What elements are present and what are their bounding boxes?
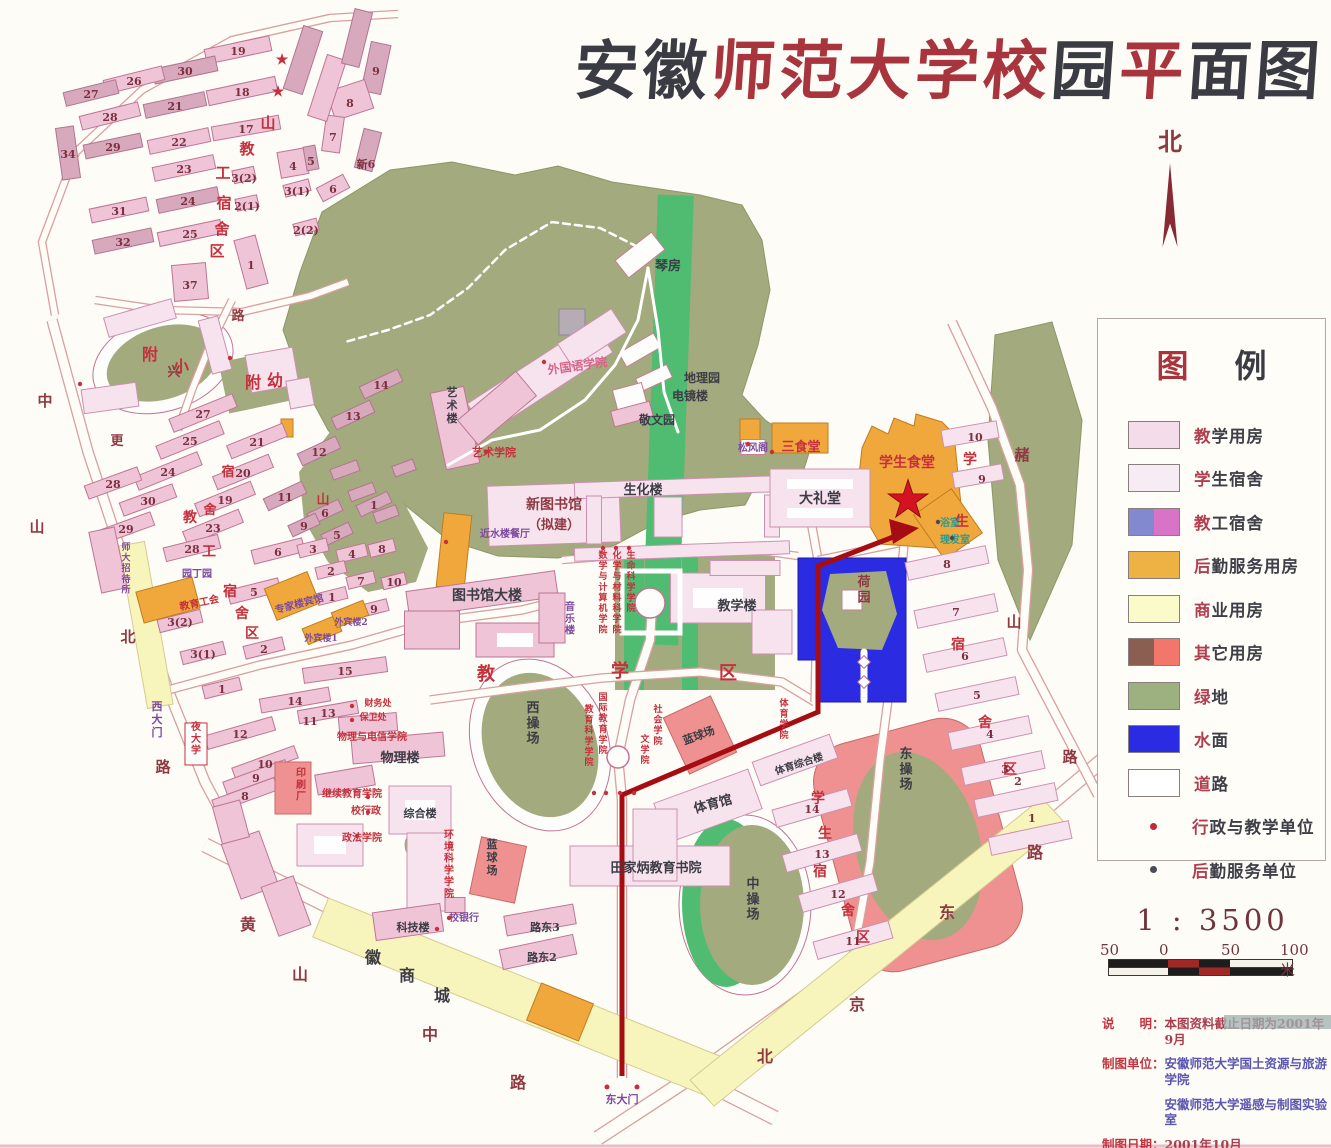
building-number: 新6 xyxy=(357,157,376,171)
admin-unit-dot-icon xyxy=(78,382,82,386)
map-label: 三食堂 xyxy=(781,439,820,455)
map-label: 体育学院 xyxy=(779,697,789,741)
admin-unit-dot-icon xyxy=(746,442,750,446)
building-number: 12 xyxy=(232,728,247,741)
building-number: 3(2) xyxy=(231,172,257,185)
legend: 图例 教学用房学生宿舍教工宿舍后勤服务用房商业用房其它用房绿地水面道路行政与教学… xyxy=(1097,318,1326,861)
map-label: 东操场 xyxy=(899,746,912,793)
legend-item-label: 后勤服务单位 xyxy=(1192,858,1297,882)
building-number: 2 xyxy=(260,643,268,656)
map-label: 松风阁 xyxy=(738,441,768,454)
building-number: 21 xyxy=(167,100,182,113)
admin-unit-dot-icon xyxy=(350,704,354,708)
legend-swatch xyxy=(1128,823,1178,830)
map-label: 路东2 xyxy=(527,950,557,964)
map-label: 蓝球场 xyxy=(487,837,499,877)
map-label: 教 xyxy=(477,663,496,685)
map-label: 路 xyxy=(231,308,245,324)
map-building xyxy=(710,561,780,576)
title-char: 师 xyxy=(708,20,778,112)
map-label: 舍 xyxy=(214,220,230,238)
title-char: 校 xyxy=(980,20,1050,112)
building-number: 13 xyxy=(320,707,335,720)
building-number: 9 xyxy=(978,473,986,486)
admin-unit-dot-icon xyxy=(484,450,488,454)
campus-map-page: ★琴房外国语学院地理园电镜楼敬文园松风阁三食堂学生食堂大礼堂生化楼新图书馆（拟建… xyxy=(0,0,1331,1148)
map-label: 西操场 xyxy=(526,701,539,747)
building-number: 7 xyxy=(952,606,960,619)
building-number: 11 xyxy=(845,935,860,948)
map-decor xyxy=(635,588,665,618)
map-label: 教学楼 xyxy=(716,598,756,614)
map-label: 北 xyxy=(120,628,135,646)
map-label: 新图书馆 xyxy=(526,496,582,513)
admin-unit-dot-icon xyxy=(601,546,605,550)
legend-swatch xyxy=(1128,508,1180,536)
map-label: 保卫处 xyxy=(358,711,387,723)
map-label: 社会学院 xyxy=(652,703,663,747)
legend-item-label: 其它用房 xyxy=(1194,640,1264,664)
map-label: 生化楼 xyxy=(623,482,662,498)
building-number: 7 xyxy=(329,131,337,144)
legend-item: 教学用房 xyxy=(1128,413,1325,457)
building-number: 13 xyxy=(345,410,360,423)
title-char: 徽 xyxy=(640,20,710,112)
legend-item: 道路 xyxy=(1128,761,1325,805)
building-number: 28 xyxy=(105,478,121,491)
map-label: 生 xyxy=(818,825,832,842)
legend-item: 绿地 xyxy=(1128,674,1325,718)
map-label: 图书馆大楼 xyxy=(452,587,522,604)
legend-item-label: 道路 xyxy=(1194,771,1229,795)
scale-ticks: 50050100 米 xyxy=(1100,941,1325,959)
map-label: 数学与计算机学院 xyxy=(598,549,608,635)
admin-unit-dot-icon xyxy=(228,356,232,360)
scale-box: 1 : 3500 50050100 米 xyxy=(1100,903,1325,976)
building-number: 2(1) xyxy=(234,200,260,213)
building-number: 6 xyxy=(321,507,329,520)
building-number: 3(1) xyxy=(190,648,216,661)
building-number: 15 xyxy=(337,665,352,678)
north-label: 北 xyxy=(1146,122,1194,157)
building-number: 1 xyxy=(218,683,226,696)
map-label: 音乐楼 xyxy=(565,600,575,637)
title-char: 平 xyxy=(1117,20,1187,112)
map-label: 夜大学 xyxy=(190,720,202,757)
note-line: 制图日期：2001年10月 xyxy=(1102,1137,1330,1148)
building-number: 21 xyxy=(249,436,264,449)
building-number: 14 xyxy=(287,695,303,708)
map-label: 师大招待所 xyxy=(121,541,130,595)
legend-title: 图例 xyxy=(1098,341,1325,387)
map-label: 东大门 xyxy=(606,1092,639,1106)
building-number: 20 xyxy=(235,467,251,480)
map-decor xyxy=(607,746,629,768)
building-number: 13 xyxy=(814,848,829,861)
map-label: 宿 xyxy=(216,194,231,212)
legend-item: 水面 xyxy=(1128,718,1325,762)
admin-unit-dot-icon xyxy=(604,791,608,795)
legend-dot-icon xyxy=(1150,866,1157,873)
building-number: 4 xyxy=(348,548,356,561)
legend-item-label: 教工宿舍 xyxy=(1194,510,1264,534)
building-number: 9 xyxy=(370,603,378,616)
map-decor xyxy=(605,1085,610,1090)
building-number: 27 xyxy=(83,88,98,101)
scale-bar-bottom xyxy=(1108,968,1293,976)
building-number: 7 xyxy=(357,575,365,588)
admin-unit-dot-icon xyxy=(444,540,448,544)
map-label: 京 xyxy=(849,995,865,1014)
building-number: 28 xyxy=(102,111,118,124)
service-unit-dot-icon xyxy=(950,536,954,540)
map-label: 政法学院 xyxy=(342,831,382,844)
building-number: 26 xyxy=(126,75,142,88)
admin-unit-dot-icon xyxy=(614,546,618,550)
north-indicator: 北 xyxy=(1146,122,1194,247)
building-number: 8 xyxy=(346,97,354,110)
building-number: 1 xyxy=(328,591,336,604)
title-char: 面 xyxy=(1185,20,1255,112)
admin-unit-dot-icon xyxy=(355,834,359,838)
legend-item: 行政与教学单位 xyxy=(1128,805,1325,849)
legend-swatch xyxy=(1128,769,1180,797)
title-char: 图 xyxy=(1253,20,1323,112)
map-label: 化学与材料科学院 xyxy=(611,549,621,635)
building-number: 32 xyxy=(115,236,130,249)
legend-dot-icon xyxy=(1150,823,1157,830)
map-label: 幼 xyxy=(267,371,283,390)
map-label: 路 xyxy=(1027,843,1044,862)
legend-title-char: 例 xyxy=(1235,341,1267,387)
map-label: 财务处 xyxy=(363,697,392,709)
map-label: 商 xyxy=(399,966,415,985)
map-label: 教育科学学院 xyxy=(583,703,594,768)
map-building xyxy=(407,833,449,911)
map-building xyxy=(497,633,533,647)
map-label: 生命科学学院 xyxy=(625,549,636,614)
building-number: 6 xyxy=(274,546,282,559)
map-label: 物理楼 xyxy=(380,750,419,766)
map-label: 区 xyxy=(209,242,224,260)
title-char: 范 xyxy=(776,20,846,112)
map-label: 兴 xyxy=(167,364,180,380)
map-label: 电镜楼 xyxy=(672,388,708,403)
building-number: 3 xyxy=(309,543,317,556)
map-label: 大礼堂 xyxy=(799,490,841,507)
map-label: 科技楼 xyxy=(397,920,430,934)
map-notes: 说 明：本图资料截止日期为2001年9月制图单位：安徽师范大学国土资源与旅游学院… xyxy=(1102,1016,1330,1148)
map-label: 区 xyxy=(245,626,259,642)
building-number: 5 xyxy=(307,155,315,168)
map-label: 中 xyxy=(422,1025,438,1044)
title-char: 安 xyxy=(572,20,642,112)
map-label: 生 xyxy=(955,513,969,530)
legend-item-label: 水面 xyxy=(1194,727,1229,751)
map-label: 园丁园 xyxy=(182,568,212,580)
building-number: 3 xyxy=(1001,763,1009,776)
map-building xyxy=(654,497,682,537)
map-building xyxy=(405,611,460,649)
map-label: 路 xyxy=(155,758,171,776)
legend-item: 教工宿舍 xyxy=(1128,500,1325,544)
legend-items: 教学用房学生宿舍教工宿舍后勤服务用房商业用房其它用房绿地水面道路行政与教学单位后… xyxy=(1128,413,1325,892)
building-number: 25 xyxy=(182,228,197,241)
map-label: 艺术楼 xyxy=(446,385,458,425)
map-label: 继续教育学院 xyxy=(322,787,382,800)
map-label: 学 xyxy=(611,660,629,682)
map-label: 舍 xyxy=(203,502,217,518)
building-number: 19 xyxy=(217,494,232,507)
building-number: 8 xyxy=(241,790,249,803)
map-label: 路 xyxy=(510,1073,527,1092)
map-label: 田家炳教育书院 xyxy=(610,860,701,876)
building-number: 29 xyxy=(118,523,133,536)
map-label: 徽 xyxy=(364,948,382,967)
legend-item: 学生宿舍 xyxy=(1128,457,1325,501)
map-label: 近水楼餐厅 xyxy=(480,527,530,540)
legend-item-label: 绿地 xyxy=(1194,684,1229,708)
map-label: 舍 xyxy=(840,902,856,919)
building-number: 6 xyxy=(961,650,969,663)
building-number: 24 xyxy=(180,195,196,208)
building-number: 10 xyxy=(386,576,402,589)
admin-unit-dot-icon xyxy=(542,360,546,364)
map-building xyxy=(587,496,602,544)
legend-item: 后勤服务单位 xyxy=(1128,848,1325,892)
map-label: 外宾楼2 xyxy=(333,616,367,628)
admin-unit-dot-icon xyxy=(350,718,354,722)
building-number: 23 xyxy=(176,163,191,176)
building-number: 34 xyxy=(60,148,76,161)
building-number: 6 xyxy=(329,183,337,196)
map-label: 敬文园 xyxy=(638,412,675,427)
map-label: 西大门 xyxy=(152,700,163,739)
scale-tick: 50 xyxy=(1221,941,1240,959)
map-label: 物理与电信学院 xyxy=(337,730,407,743)
building-number: 5 xyxy=(250,586,258,599)
legend-item-label: 商业用房 xyxy=(1194,597,1264,621)
map-label: 学 xyxy=(963,451,977,468)
map-label: 山 xyxy=(260,114,275,132)
map-label: 附 xyxy=(245,373,261,392)
map-label: 校银行 xyxy=(449,911,479,924)
map-building xyxy=(787,508,853,518)
map-label: 北 xyxy=(757,1047,773,1066)
admin-unit-dot-icon xyxy=(435,927,439,931)
building-number: 4 xyxy=(986,728,994,741)
building-number: 10 xyxy=(257,758,273,771)
legend-swatch xyxy=(1128,725,1180,753)
page-title: 安徽师范大学校园平面图 xyxy=(572,20,1323,112)
map-building xyxy=(286,377,314,409)
map-label: （拟建） xyxy=(528,517,580,533)
map-label: 国际教育学院 xyxy=(597,692,608,756)
note-line: 说 明：本图资料截止日期为2001年9月 xyxy=(1102,1016,1330,1047)
note-line: 制图单位：安徽师范大学国土资源与旅游学院 xyxy=(1102,1056,1330,1087)
map-label: 宿 xyxy=(813,863,827,880)
map-label: 学生食堂 xyxy=(879,454,935,471)
scale-tick: 50 xyxy=(1100,941,1119,959)
building-number: 8 xyxy=(378,543,386,556)
map-label: 城 xyxy=(434,986,450,1005)
map-label: 更 xyxy=(110,434,124,449)
map-label: 琴房 xyxy=(655,258,681,274)
map-label: 黄 xyxy=(240,915,256,934)
destination-star-icon: ★ xyxy=(885,470,932,530)
map-label: 附 xyxy=(142,345,158,364)
building-number: 1 xyxy=(370,499,378,512)
legend-title-char: 图 xyxy=(1156,341,1188,387)
building-number: 11 xyxy=(302,715,317,728)
map-label: 荷园 xyxy=(856,574,870,605)
building-number: 28 xyxy=(184,543,200,556)
scale-ratio: 1 : 3500 xyxy=(1100,903,1325,937)
scale-tick: 0 xyxy=(1159,941,1169,959)
scale-bar-top xyxy=(1108,959,1293,968)
legend-swatch xyxy=(1128,595,1180,623)
map-label: 地理园 xyxy=(684,370,720,385)
map-label: 路东3 xyxy=(530,920,560,934)
building-number: 19 xyxy=(230,45,245,58)
map-label: 教 xyxy=(183,509,198,526)
map-label: 区 xyxy=(719,663,737,684)
building-number: 10 xyxy=(967,431,983,444)
map-label: 舍 xyxy=(234,605,250,622)
scale-tick: 100 米 xyxy=(1280,941,1325,980)
admin-unit-dot-icon xyxy=(632,791,636,795)
legend-item-label: 教学用房 xyxy=(1194,423,1264,447)
legend-swatch xyxy=(1128,866,1178,873)
map-label: 教 xyxy=(238,140,255,158)
building-number: 29 xyxy=(105,141,120,154)
building-number: 3(2) xyxy=(167,616,193,629)
admin-unit-dot-icon xyxy=(770,450,774,454)
map-label: 综合楼 xyxy=(404,806,437,820)
legend-item-label: 学生宿舍 xyxy=(1194,466,1264,490)
admin-unit-dot-icon xyxy=(627,546,631,550)
admin-unit-dot-icon xyxy=(592,791,596,795)
building-number: 24 xyxy=(160,466,176,479)
admin-unit-dot-icon xyxy=(618,791,622,795)
map-label: 环境科学学院 xyxy=(444,829,454,900)
building-number: 30 xyxy=(177,65,193,78)
legend-item-label: 后勤服务用房 xyxy=(1194,553,1299,577)
map-label: 宿 xyxy=(223,583,237,600)
title-char: 园 xyxy=(1048,20,1118,112)
north-arrow-icon xyxy=(1159,163,1181,247)
building-number: 1 xyxy=(247,259,255,272)
building-number: 12 xyxy=(830,888,845,901)
building-number: 4 xyxy=(289,160,297,173)
building-number: 14 xyxy=(804,803,820,816)
legend-swatch xyxy=(1128,682,1180,710)
map-label: 印刷厂 xyxy=(296,767,306,803)
map-label: 赭 xyxy=(1014,446,1029,464)
legend-swatch xyxy=(1128,638,1180,666)
building-number: 37 xyxy=(182,279,197,292)
building-number: 9 xyxy=(252,772,260,785)
building-number: 2(2) xyxy=(293,224,319,237)
admin-unit-dot-icon xyxy=(447,916,451,920)
map-label: 路 xyxy=(1062,748,1078,766)
admin-unit-dot-icon xyxy=(366,795,370,799)
map-label: 山 xyxy=(316,492,329,508)
map-label: 中操场 xyxy=(746,876,759,923)
legend-item: 商业用房 xyxy=(1128,587,1325,631)
admin-unit-dot-icon xyxy=(366,810,370,814)
building-number: 22 xyxy=(171,136,186,149)
map-label: 东 xyxy=(939,903,955,922)
legend-item: 其它用房 xyxy=(1128,631,1325,675)
map-label: ★ xyxy=(276,52,289,68)
building-number: 9 xyxy=(372,65,380,78)
building-number: 2 xyxy=(1014,775,1022,788)
building-number: 23 xyxy=(205,522,220,535)
map-label: 山 xyxy=(1006,613,1021,631)
building-number: 5 xyxy=(333,529,341,542)
map-label: 理发室 xyxy=(940,533,970,546)
map-building xyxy=(740,419,760,441)
building-number: 9 xyxy=(300,520,308,533)
title-char: 大 xyxy=(844,20,914,112)
map-label: ★ xyxy=(272,84,285,100)
building-number: 12 xyxy=(311,446,326,459)
map-label: 工 xyxy=(215,164,230,182)
title-char: 学 xyxy=(912,20,982,112)
building-number: 25 xyxy=(182,435,197,448)
map-label: 文学院 xyxy=(639,733,650,766)
map-building xyxy=(539,593,565,643)
building-number: 17 xyxy=(238,123,253,136)
note-line: 安徽师范大学遥感与制图实验室 xyxy=(1102,1097,1330,1128)
building-number: 14 xyxy=(373,379,389,392)
legend-swatch xyxy=(1128,464,1180,492)
building-number: 1 xyxy=(1028,812,1036,825)
building-number: 11 xyxy=(277,491,292,504)
legend-swatch xyxy=(1128,421,1180,449)
building-number: 5 xyxy=(973,689,981,702)
map-building xyxy=(787,479,853,489)
building-number: 8 xyxy=(943,558,951,571)
legend-item: 后勤服务用房 xyxy=(1128,544,1325,588)
map-label: 中 xyxy=(37,392,52,410)
building-number: 2 xyxy=(327,565,335,578)
building-number: 18 xyxy=(234,86,250,99)
map-building xyxy=(752,610,792,654)
map-label: 宿 xyxy=(221,464,234,480)
building-number: 31 xyxy=(111,205,126,218)
scan-artifact-bar xyxy=(1224,1015,1331,1029)
map-label: 工 xyxy=(202,544,216,560)
legend-item-label: 行政与教学单位 xyxy=(1192,814,1315,838)
map-label: 外宾楼1 xyxy=(303,632,337,644)
map-label: 艺术学院 xyxy=(472,445,516,459)
map-label: 山 xyxy=(292,965,308,984)
building-number: 3(1) xyxy=(284,185,310,198)
service-unit-dot-icon xyxy=(936,520,940,524)
map-decor xyxy=(635,1085,640,1090)
building-number: 27 xyxy=(195,408,210,421)
legend-swatch xyxy=(1128,551,1180,579)
building-number: 30 xyxy=(140,495,156,508)
map-label: 山 xyxy=(29,518,44,536)
